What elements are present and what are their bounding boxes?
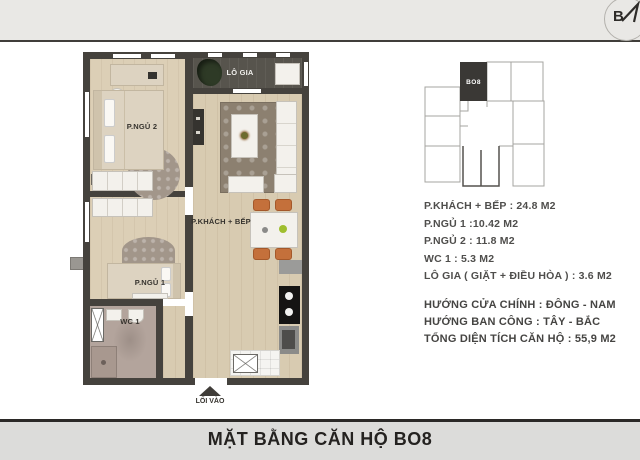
dining-chair-2 [275, 199, 292, 211]
bedroom1-label: P.NGỦ 1 [127, 278, 173, 287]
wall-right [302, 52, 309, 385]
orientation-list: HƯỚNG CỬA CHÍNH : ĐÔNG - NAM HƯỚNG BAN C… [424, 299, 636, 350]
entrance-opening [195, 378, 227, 385]
entrance-label: LỐI VÀO [182, 398, 238, 405]
loggia-label: LÔ GIA [213, 68, 267, 77]
entrance-arrow-icon [199, 386, 221, 396]
wc-shower [91, 346, 117, 378]
header-band [0, 0, 640, 42]
window-loggia-right [304, 62, 308, 86]
plate-gray [262, 227, 268, 233]
wc-shaft-hatch [91, 308, 104, 342]
loggia-door-gap [233, 89, 261, 93]
bed2-pillow-b [104, 135, 115, 163]
window-bedroom2-left [85, 92, 89, 137]
living-kitchen-label: P.KHÁCH + BẾP [183, 217, 259, 226]
door-gap-bedrooms [185, 187, 193, 215]
shelf-detail-b [196, 131, 200, 134]
coffee-table [231, 114, 258, 158]
tv-on-dresser [148, 72, 157, 79]
loggia-rail-gap-a [208, 53, 222, 57]
window-bedroom2-b [151, 54, 175, 58]
window-bedroom1-left [85, 202, 89, 242]
cooktop [279, 286, 300, 324]
floor-plan: P.NGỦ 2 LÔ GIA P.KHÁCH + BẾP P.NGỦ 1 WC … [83, 52, 309, 385]
bedroom2-label: P.NGỦ 2 [119, 122, 165, 131]
key-plan: BO8 [424, 54, 548, 190]
kitchen-fixture-box [233, 354, 258, 373]
plate-green [279, 225, 287, 233]
wall-wc-top [90, 299, 163, 306]
hall-floor [163, 306, 185, 378]
bedroom2-wardrobe [92, 171, 153, 191]
bedroom2-dresser [110, 64, 164, 86]
sofa-chaise [274, 174, 297, 193]
tv-bench [228, 176, 264, 193]
exterior-ledge [70, 257, 84, 270]
burner-b [285, 308, 293, 316]
bedroom1-bench [132, 293, 168, 299]
footer-band: MẶT BẰNG CĂN HỘ BO8 [0, 419, 640, 460]
window-bedroom2-a [113, 54, 141, 58]
shelf-detail-a [196, 117, 200, 120]
area-line: LÔ GIA ( GIẶT + ĐIỀU HÒA ) : 3.6 M2 [424, 270, 636, 288]
area-line: P.KHÁCH + BẾP : 24.8 M2 [424, 200, 636, 218]
tv-wall-unit [193, 109, 204, 145]
dining-chair-3 [253, 248, 270, 260]
shower-drain [101, 360, 106, 365]
detail-line: HƯỚNG BAN CÔNG : TÂY - BẮC [424, 316, 636, 333]
area-line: P.NGỦ 1 :10.42 M2 [424, 218, 636, 236]
dining-chair-4 [275, 248, 292, 260]
bedroom1-wardrobe [92, 198, 153, 217]
wall-wc-right [156, 306, 163, 378]
bed2-pillow-a [104, 99, 115, 127]
detail-line: TỔNG DIỆN TÍCH CĂN HỘ : 55,9 M2 [424, 333, 636, 350]
dining-chair-1 [253, 199, 270, 211]
north-arrow-icon [621, 0, 640, 24]
bedroom1-half-rug [122, 237, 175, 265]
area-list: P.KHÁCH + BẾP : 24.8 M2 P.NGỦ 1 :10.42 M… [424, 200, 636, 288]
kitchen-counter-gray [279, 260, 302, 274]
wc-label: WC 1 [113, 317, 147, 326]
bed2-headboard [94, 91, 102, 169]
bed1-headboard [173, 264, 180, 298]
sink-basin [282, 330, 295, 349]
key-plan-unit-label: BO8 [466, 79, 481, 86]
area-line: WC 1 : 5.3 M2 [424, 253, 636, 271]
door-gap-hall [185, 292, 193, 316]
loggia-washer [275, 63, 300, 85]
loggia-rail-gap-b [243, 53, 257, 57]
kitchen-sink [279, 326, 299, 354]
area-line: P.NGỦ 2 : 11.8 M2 [424, 235, 636, 253]
table-flower [241, 132, 248, 139]
detail-line: HƯỚNG CỬA CHÍNH : ĐÔNG - NAM [424, 299, 636, 316]
page-title: MẶT BẰNG CĂN HỘ BO8 [0, 422, 640, 457]
loggia-rail-gap-c [276, 53, 290, 57]
burner-a [285, 292, 293, 300]
